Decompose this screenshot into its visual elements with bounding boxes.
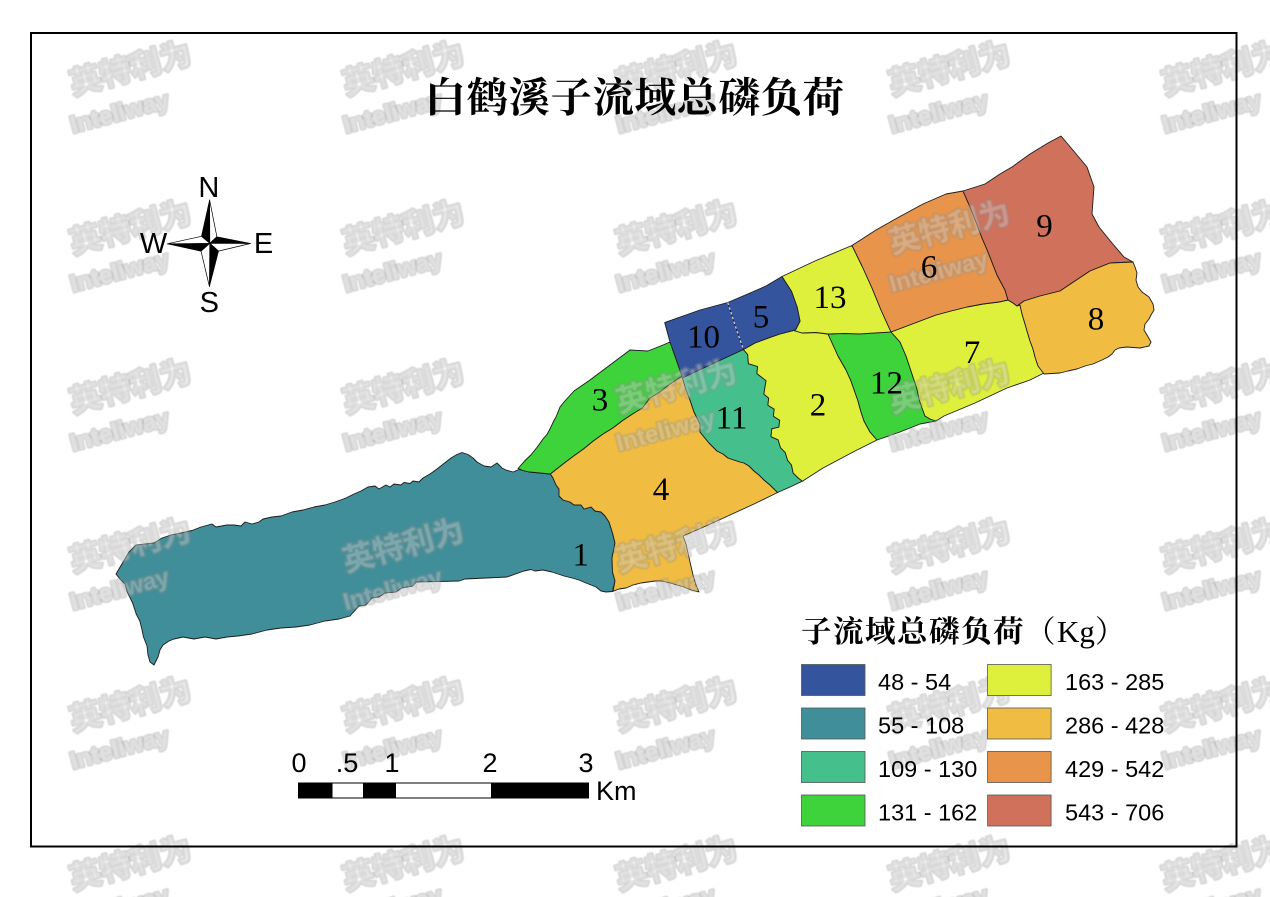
svg-text:6: 6 xyxy=(921,250,938,286)
svg-text:10: 10 xyxy=(687,320,720,356)
svg-text:3: 3 xyxy=(592,383,609,419)
svg-text:1: 1 xyxy=(384,748,399,778)
svg-text:131 - 162: 131 - 162 xyxy=(878,800,977,826)
svg-text:W: W xyxy=(140,228,168,260)
svg-text:3: 3 xyxy=(578,748,593,778)
svg-text:8: 8 xyxy=(1088,302,1105,338)
svg-text:1: 1 xyxy=(572,538,589,574)
svg-text:.5: .5 xyxy=(336,748,359,778)
svg-text:429 - 542: 429 - 542 xyxy=(1065,756,1164,782)
svg-text:4: 4 xyxy=(653,472,670,508)
svg-text:E: E xyxy=(254,228,273,260)
svg-text:S: S xyxy=(200,287,219,319)
svg-text:13: 13 xyxy=(814,280,847,316)
svg-text:12: 12 xyxy=(870,366,903,402)
svg-text:0: 0 xyxy=(291,748,306,778)
svg-text:9: 9 xyxy=(1036,209,1053,245)
svg-text:286 - 428: 286 - 428 xyxy=(1065,713,1164,739)
svg-text:2: 2 xyxy=(810,388,827,424)
svg-text:5: 5 xyxy=(753,300,770,336)
svg-text:2: 2 xyxy=(482,748,497,778)
svg-text:7: 7 xyxy=(964,335,981,371)
svg-text:Kg: Kg xyxy=(1057,614,1095,649)
svg-text:55 - 108: 55 - 108 xyxy=(878,713,964,739)
svg-text:Km: Km xyxy=(596,776,637,806)
svg-text:48 - 54: 48 - 54 xyxy=(878,669,951,695)
svg-text:N: N xyxy=(198,172,219,204)
svg-text:543 - 706: 543 - 706 xyxy=(1065,800,1164,826)
svg-text:109 - 130: 109 - 130 xyxy=(878,756,977,782)
svg-text:163 - 285: 163 - 285 xyxy=(1065,669,1164,695)
svg-text:11: 11 xyxy=(716,401,748,437)
